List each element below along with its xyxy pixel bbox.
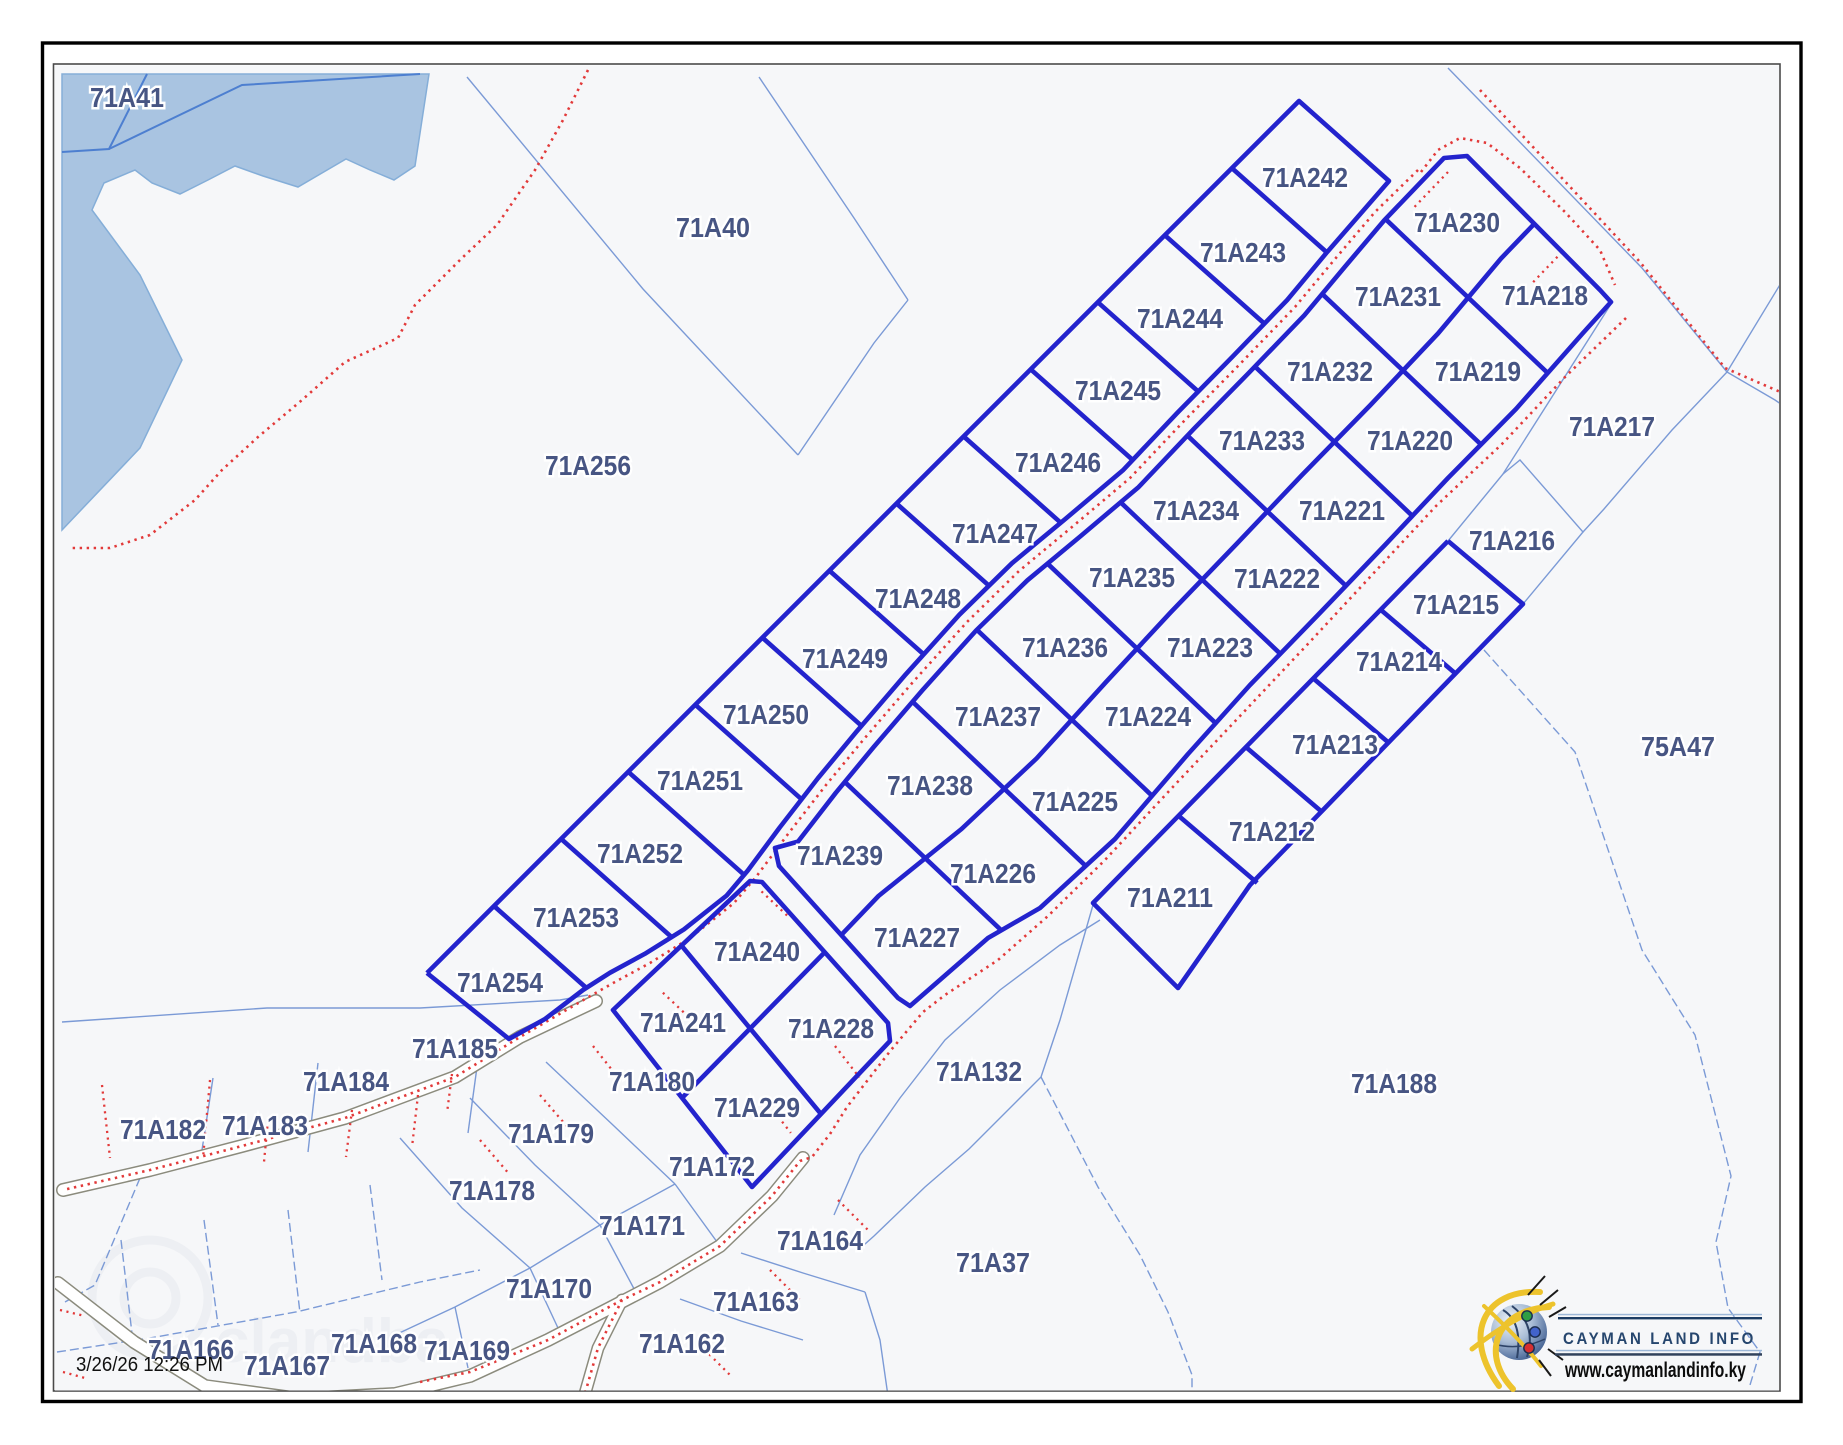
svg-text:71A229: 71A229 <box>714 1092 800 1123</box>
svg-text:71A214: 71A214 <box>1356 646 1442 677</box>
svg-text:71A180: 71A180 <box>609 1066 695 1097</box>
svg-text:71A233: 71A233 <box>1219 425 1305 456</box>
svg-text:71A219: 71A219 <box>1435 356 1521 387</box>
svg-text:71A228: 71A228 <box>788 1013 874 1044</box>
svg-text:71A236: 71A236 <box>1022 632 1108 663</box>
svg-text:71A256: 71A256 <box>545 450 631 481</box>
svg-text:71A213: 71A213 <box>1292 729 1378 760</box>
svg-text:71A240: 71A240 <box>714 936 800 967</box>
svg-text:71A171: 71A171 <box>599 1210 685 1241</box>
svg-text:71A218: 71A218 <box>1502 280 1588 311</box>
svg-text:71A215: 71A215 <box>1413 589 1499 620</box>
svg-text:71A243: 71A243 <box>1200 237 1286 268</box>
svg-text:71A37: 71A37 <box>956 1247 1030 1278</box>
svg-text:71A244: 71A244 <box>1137 303 1223 334</box>
svg-text:71A226: 71A226 <box>950 858 1036 889</box>
svg-text:71A232: 71A232 <box>1287 356 1373 387</box>
svg-text:71A132: 71A132 <box>936 1056 1022 1087</box>
svg-text:71A168: 71A168 <box>331 1328 417 1359</box>
svg-text:71A188: 71A188 <box>1351 1068 1437 1099</box>
svg-text:71A227: 71A227 <box>874 922 960 953</box>
svg-text:71A167: 71A167 <box>244 1350 330 1381</box>
svg-text:71A241: 71A241 <box>640 1007 726 1038</box>
svg-text:71A238: 71A238 <box>887 770 973 801</box>
svg-text:71A183: 71A183 <box>222 1110 308 1141</box>
svg-text:71A230: 71A230 <box>1414 207 1500 238</box>
svg-text:71A234: 71A234 <box>1153 495 1239 526</box>
svg-text:71A169: 71A169 <box>424 1335 510 1366</box>
svg-text:71A216: 71A216 <box>1469 525 1555 556</box>
svg-text:71A249: 71A249 <box>802 643 888 674</box>
svg-text:71A223: 71A223 <box>1167 632 1253 663</box>
svg-text:71A239: 71A239 <box>797 840 883 871</box>
svg-text:71A172: 71A172 <box>669 1151 755 1182</box>
svg-text:71A212: 71A212 <box>1229 816 1315 847</box>
svg-text:71A163: 71A163 <box>713 1286 799 1317</box>
svg-text:71A237: 71A237 <box>955 701 1041 732</box>
svg-text:71A211: 71A211 <box>1127 882 1213 913</box>
svg-text:CAYMAN LAND INFO: CAYMAN LAND INFO <box>1563 1329 1756 1348</box>
svg-text:71A254: 71A254 <box>457 967 543 998</box>
svg-text:75A47: 75A47 <box>1641 731 1715 762</box>
svg-text:71A184: 71A184 <box>303 1066 389 1097</box>
svg-text:71A225: 71A225 <box>1032 786 1118 817</box>
svg-text:71A162: 71A162 <box>639 1328 725 1359</box>
svg-text:3/26/26 12:26 PM: 3/26/26 12:26 PM <box>76 1353 223 1376</box>
svg-text:71A217: 71A217 <box>1569 411 1655 442</box>
svg-text:71A164: 71A164 <box>777 1225 863 1256</box>
svg-text:71A245: 71A245 <box>1075 375 1161 406</box>
svg-text:71A248: 71A248 <box>875 583 961 614</box>
svg-text:71A40: 71A40 <box>676 212 750 243</box>
svg-text:71A235: 71A235 <box>1089 562 1175 593</box>
svg-text:71A170: 71A170 <box>506 1273 592 1304</box>
svg-text:71A252: 71A252 <box>597 838 683 869</box>
svg-text:71A41: 71A41 <box>90 82 164 113</box>
svg-text:71A222: 71A222 <box>1234 563 1320 594</box>
svg-text:71A182: 71A182 <box>120 1114 206 1145</box>
svg-text:71A246: 71A246 <box>1015 447 1101 478</box>
svg-text:71A242: 71A242 <box>1262 162 1348 193</box>
svg-text:71A178: 71A178 <box>449 1175 535 1206</box>
svg-text:71A221: 71A221 <box>1299 495 1385 526</box>
svg-text:71A247: 71A247 <box>952 518 1038 549</box>
svg-text:71A253: 71A253 <box>533 902 619 933</box>
svg-text:71A251: 71A251 <box>657 765 743 796</box>
svg-text:71A231: 71A231 <box>1355 281 1441 312</box>
svg-text:71A250: 71A250 <box>723 699 809 730</box>
svg-text:www.caymanlandinfo.ky: www.caymanlandinfo.ky <box>1564 1359 1746 1382</box>
svg-text:71A224: 71A224 <box>1105 701 1191 732</box>
svg-text:71A179: 71A179 <box>508 1118 594 1149</box>
svg-text:71A220: 71A220 <box>1367 425 1453 456</box>
svg-text:71A185: 71A185 <box>412 1033 498 1064</box>
